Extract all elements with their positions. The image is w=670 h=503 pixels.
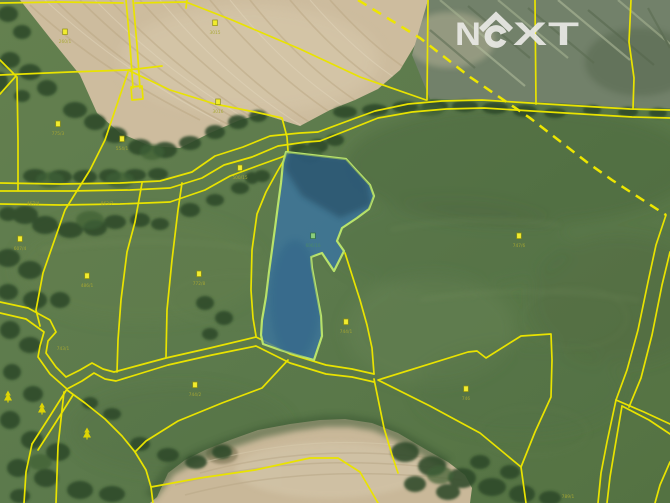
parcel-number: 607/4 (14, 246, 27, 252)
parcel-marker (517, 233, 522, 239)
parcel-number: 746 (462, 396, 470, 402)
parcel-marker (120, 136, 125, 142)
parcel-number: 260/1 (59, 39, 72, 45)
parcel-marker (193, 382, 198, 388)
parcel-marker (464, 386, 469, 392)
parcel-number: 3015 (210, 30, 221, 36)
parcel-number: 789/1 (562, 494, 575, 500)
map-canvas: 3015260/13016775/3554/1500/15863/7467/46… (0, 0, 670, 503)
highlight-parcel-marker (311, 233, 316, 239)
parcel-label: 743/1 (57, 346, 70, 352)
parcel-number: 743/1 (57, 346, 70, 352)
parcel-number: 744/2 (189, 392, 202, 398)
parcel-number: 775/3 (52, 131, 65, 137)
parcel-marker (85, 273, 90, 279)
parcel-label: 863/7 (101, 201, 114, 207)
next-logo-letter: X (513, 16, 548, 52)
aerial-cadastral-map: 3015260/13016775/3554/1500/15863/7467/46… (0, 0, 670, 503)
parcel-label: 467/4 (27, 201, 40, 207)
parcel-number: 606/16 (305, 243, 320, 249)
parcel-number: 500/15 (232, 175, 247, 181)
parcel-marker (213, 20, 218, 26)
next-logo-letter: N (455, 16, 481, 52)
parcel-number: 467/4 (27, 201, 40, 207)
parcel-marker (18, 236, 23, 242)
next-logo-watermark: NXT (455, 16, 580, 53)
parcel-number: 863/7 (101, 201, 114, 207)
parcel-marker (238, 165, 243, 171)
parcel-label: 789/1 (562, 494, 575, 500)
parcel-number: 747/6 (513, 243, 526, 249)
parcel-number: 772/8 (193, 281, 206, 287)
parcel-number: 3016 (213, 109, 224, 115)
parcel-marker (56, 121, 61, 127)
parcel-number: 486/1 (81, 283, 94, 289)
parcel-number: 744/1 (340, 329, 353, 335)
next-logo-letter: T (548, 16, 580, 52)
parcel-marker (197, 271, 202, 277)
parcel-marker (216, 99, 221, 105)
parcel-number: 554/1 (116, 146, 129, 152)
parcel-marker (63, 29, 68, 35)
parcel-marker (344, 319, 349, 325)
